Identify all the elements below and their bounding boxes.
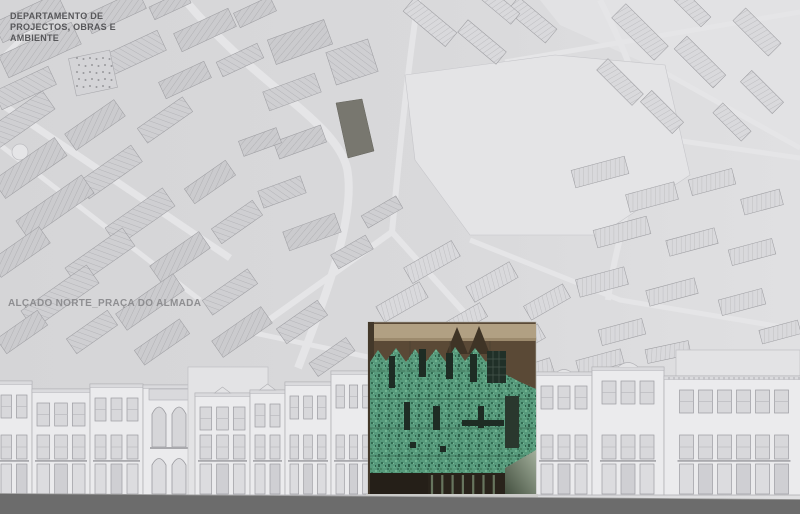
map-tree-dot <box>102 71 104 73</box>
door <box>255 464 265 494</box>
door <box>1 464 12 494</box>
facade-cornice <box>90 384 143 388</box>
facade-cornice <box>536 372 592 376</box>
townhouse-facade <box>0 381 32 495</box>
door <box>756 464 770 494</box>
facade-cornice <box>592 367 664 371</box>
door <box>55 464 68 494</box>
door <box>575 464 587 494</box>
townhouse-facade <box>90 384 143 495</box>
door <box>304 464 313 494</box>
map-tree-dot <box>89 85 91 87</box>
facade-window-slot <box>404 402 410 430</box>
map-tree-dot <box>89 71 91 73</box>
facade-window-slot <box>462 420 504 426</box>
door <box>718 464 732 494</box>
storefront-solid <box>370 473 428 497</box>
door <box>775 464 789 494</box>
facade-window-grid <box>487 351 506 383</box>
facade-balustrade <box>673 377 675 380</box>
facade-balustrade <box>718 377 720 380</box>
arched-window <box>152 407 166 447</box>
balcony-rail <box>288 460 328 462</box>
facade-balustrade <box>753 377 755 380</box>
balcony-rail <box>334 460 373 462</box>
facade-balustrade <box>723 377 725 380</box>
door <box>640 464 654 494</box>
map-tree-dot <box>91 78 93 80</box>
map-tree-dot <box>98 65 100 67</box>
arched-door <box>152 459 166 495</box>
facade-balustrade <box>783 377 785 380</box>
townhouse-facade <box>285 382 331 495</box>
facade-window-slot <box>470 354 477 382</box>
facade-cornice <box>285 382 331 386</box>
facade-balustrade <box>768 377 770 380</box>
facade-cornice <box>0 381 32 385</box>
balcony-rail <box>539 460 589 462</box>
townhouse-facade <box>536 370 592 496</box>
map-tree-dot <box>76 85 78 87</box>
door <box>621 464 635 494</box>
facade-balustrade <box>708 377 710 380</box>
townhouse-facade <box>143 385 195 495</box>
map-tree-dot <box>91 64 93 66</box>
door <box>37 464 50 494</box>
door <box>336 464 344 494</box>
map-tree-dot <box>111 65 113 67</box>
map-tree-dot <box>78 64 80 66</box>
facade-window-slot <box>389 356 395 388</box>
map-tree-dot <box>109 86 111 88</box>
door <box>317 464 326 494</box>
facade-balustrade <box>773 377 775 380</box>
door <box>17 464 28 494</box>
door <box>349 464 357 494</box>
map-tree-dot <box>76 71 78 73</box>
facade-balustrade <box>793 377 795 380</box>
facade-balustrade <box>758 377 760 380</box>
facade-balustrade <box>713 377 715 380</box>
facade-balustrade <box>698 377 700 380</box>
map-tree-dot <box>78 78 80 80</box>
facade-dark-recess <box>505 396 519 448</box>
department-label-line2: PROJECTOS, OBRAS E <box>10 22 116 33</box>
door <box>95 464 106 494</box>
facade-balustrade <box>743 377 745 380</box>
map-tree-dot <box>76 57 78 59</box>
map-tree-dot <box>102 85 104 87</box>
door <box>737 464 751 494</box>
balcony-rail <box>93 460 140 462</box>
townhouse-facade <box>32 389 90 495</box>
facade-balustrade <box>748 377 750 380</box>
door <box>699 464 713 494</box>
balcony-rail <box>150 447 188 449</box>
facade-cornice <box>32 389 90 393</box>
arched-window <box>172 407 186 447</box>
drawing-title: ALÇADO NORTE_PRAÇA DO ALMADA <box>8 298 201 309</box>
door <box>680 464 694 494</box>
door <box>602 464 616 494</box>
balcony-rail <box>253 460 282 462</box>
door <box>270 464 280 494</box>
map-tree-dot <box>83 58 85 60</box>
map-tree-dot <box>96 72 98 74</box>
map-tree-dot <box>96 58 98 60</box>
map-tree-dot <box>85 79 87 81</box>
door <box>558 464 570 494</box>
balcony-rail <box>0 460 29 462</box>
map-tree-dot <box>98 79 100 81</box>
map-tree-dot <box>104 78 106 80</box>
facade-balustrade <box>668 377 670 380</box>
door <box>72 464 85 494</box>
facade-balustrade <box>778 377 780 380</box>
townhouse-facade <box>250 384 285 495</box>
department-label-line1: DEPARTAMENTO DE <box>10 11 116 22</box>
door <box>217 464 229 494</box>
map-tree-dot <box>111 79 113 81</box>
facade-window-slot <box>446 353 453 379</box>
facade-balustrade <box>683 377 685 380</box>
map-tree-dot <box>104 64 106 66</box>
facade-balustrade <box>688 377 690 380</box>
facade-cornice <box>143 385 195 389</box>
facade-wall <box>143 385 195 495</box>
architectural-drawing-sheet: DEPARTAMENTO DE PROJECTOS, OBRAS E AMBIE… <box>0 0 800 514</box>
map-tree-dot <box>85 65 87 67</box>
arched-door <box>172 459 186 495</box>
townhouse-facade <box>592 363 664 496</box>
door <box>541 464 553 494</box>
facade-balustrade <box>703 377 705 380</box>
balcony-rail <box>678 460 791 462</box>
facade-balustrade <box>738 377 740 380</box>
facade-balustrade <box>733 377 735 380</box>
townhouse-facade <box>664 350 800 495</box>
facade-attic-band <box>149 389 189 400</box>
proposed-building-elevation <box>366 322 538 498</box>
balcony-rail <box>35 460 87 462</box>
department-label: DEPARTAMENTO DE PROJECTOS, OBRAS E AMBIE… <box>10 11 116 44</box>
facade-window-slot <box>433 406 440 430</box>
balcony-rail <box>600 460 656 462</box>
map-tree-dot <box>96 86 98 88</box>
door <box>111 464 122 494</box>
facade-balustrade <box>678 377 680 380</box>
door <box>233 464 245 494</box>
map-tree-dot <box>102 57 104 59</box>
facade-cornice <box>250 390 285 394</box>
facade-cornice <box>195 393 250 397</box>
door <box>127 464 138 494</box>
facade-window-slot <box>440 446 446 452</box>
facade-balustrade <box>728 377 730 380</box>
department-label-line3: AMBIENTE <box>10 33 116 44</box>
drawing-scene <box>0 0 800 514</box>
map-tree-dot <box>109 58 111 60</box>
facade-balustrade <box>763 377 765 380</box>
map-tree-dot <box>89 57 91 59</box>
map-tree-dot <box>109 72 111 74</box>
map-park <box>69 50 118 96</box>
facade-balustrade <box>788 377 790 380</box>
map-tree-dot <box>83 86 85 88</box>
door <box>200 464 212 494</box>
facade-window-slot <box>419 349 426 377</box>
door <box>290 464 299 494</box>
facade-window-slot <box>410 442 416 448</box>
map-tree-dot <box>83 72 85 74</box>
facade-balustrade <box>693 377 695 380</box>
balcony-rail <box>198 460 247 462</box>
